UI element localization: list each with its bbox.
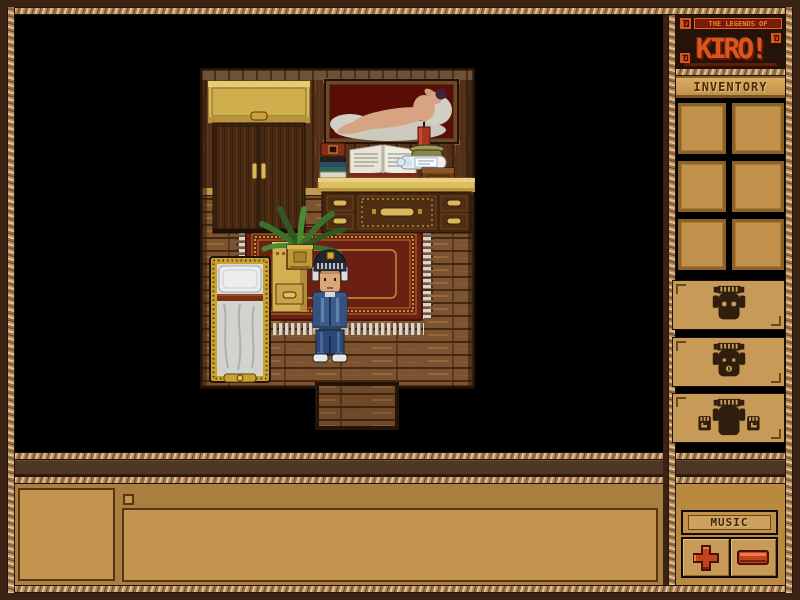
- music-panel: MUSIC: [676, 484, 785, 585]
- doorway-step[interactable]: [317, 384, 397, 428]
- frame-rope-bottom: [7, 585, 793, 593]
- music-header: MUSIC: [681, 510, 778, 535]
- frame-rope-left: [7, 7, 15, 593]
- emote-button-2[interactable]: [672, 337, 785, 387]
- tiki-mask-mouth-icon: [707, 341, 751, 383]
- inventory-slot-6[interactable]: [732, 219, 784, 270]
- separator-bar: [676, 460, 785, 476]
- separator-rope: [676, 452, 785, 460]
- inventory-header: INVENTORY: [676, 76, 785, 98]
- chat-input[interactable]: [122, 508, 658, 582]
- separator-rope: [676, 476, 785, 484]
- game-logo: THE LEGENDS OF KIRO!: [676, 15, 785, 68]
- volume-down-button[interactable]: [731, 539, 777, 576]
- game-scene[interactable]: [200, 68, 475, 430]
- volume-up-button[interactable]: [683, 539, 729, 576]
- separator-rope: [15, 452, 663, 460]
- message-bottle: [397, 156, 446, 169]
- sidebar-rope-divider: [676, 68, 785, 76]
- game-window: THE LEGENDS OF KIRO! INVENTORY: [0, 0, 800, 600]
- logo-underline: [684, 63, 777, 66]
- emote-button-1[interactable]: [672, 280, 785, 330]
- music-label: MUSIC: [688, 515, 771, 530]
- inventory-slot-1[interactable]: [678, 103, 726, 154]
- volume-plus-icon: [692, 544, 720, 572]
- emote-button-3[interactable]: [672, 393, 785, 443]
- inventory-slot-3[interactable]: [678, 161, 726, 212]
- inventory-slot-4[interactable]: [732, 161, 784, 212]
- right-hand: [747, 416, 759, 430]
- frame-rope-right: [785, 7, 793, 593]
- logo-title: KIRO!: [676, 28, 785, 68]
- separator-rope: [15, 476, 663, 484]
- inventory-slot-2[interactable]: [732, 103, 784, 154]
- separator-bar: [15, 460, 663, 476]
- tiki-mask-hands-icon: [696, 397, 762, 439]
- inventory-slot-5[interactable]: [678, 219, 726, 270]
- game-viewport[interactable]: [15, 15, 663, 452]
- player-character[interactable]: [312, 250, 348, 362]
- bed[interactable]: [210, 257, 270, 382]
- tiki-mask-eyes-icon: [707, 284, 751, 326]
- music-controls: [681, 537, 778, 578]
- spiral-ornament-icon: [771, 33, 781, 43]
- chat-panel: [15, 484, 663, 585]
- wardrobe[interactable]: [208, 81, 310, 233]
- volume-minus-icon: [737, 550, 769, 566]
- chat-mini-square[interactable]: [123, 494, 134, 505]
- frame-rope-top: [7, 7, 793, 15]
- framed-nude-painting[interactable]: [323, 78, 460, 145]
- spiral-ornament-icon: [680, 53, 690, 63]
- left-hand: [698, 416, 710, 430]
- portrait-box: [18, 488, 115, 581]
